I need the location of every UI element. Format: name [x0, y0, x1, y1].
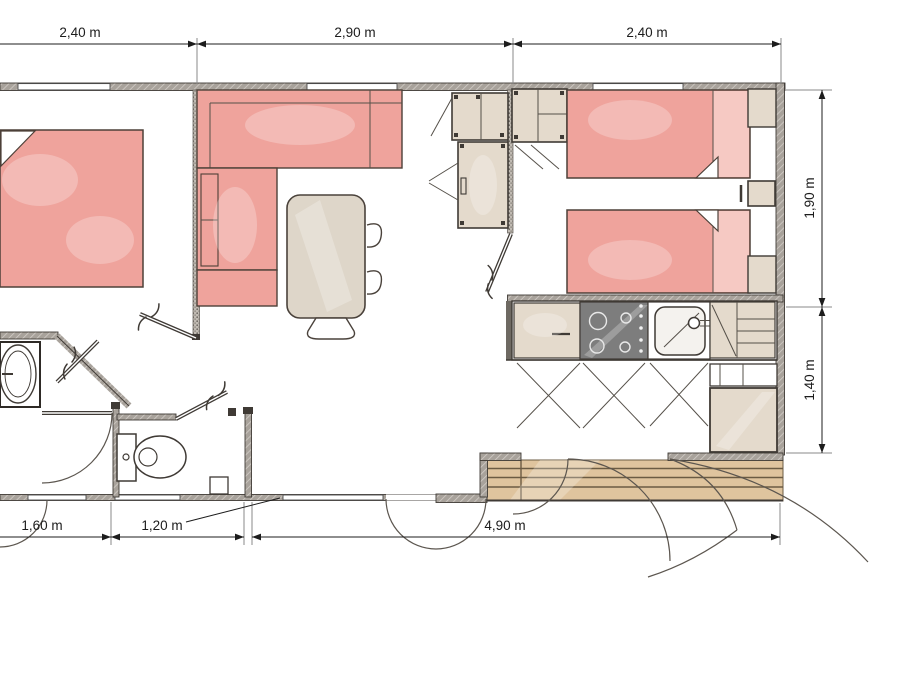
- leader-line: [186, 498, 280, 522]
- dim-label-right-1: 1,90 m: [802, 177, 817, 218]
- window-bottom-3: [283, 495, 383, 500]
- bathroom: [0, 341, 112, 483]
- floor-plan-svg: 2,40 m 2,90 m 2,40 m 1,90 m 1,40 m 1,60 …: [0, 0, 900, 675]
- dim-label-top-1: 2,40 m: [59, 25, 100, 40]
- counter-side-panel: [506, 301, 512, 360]
- single-bed-2: [567, 210, 750, 293]
- dining-table: [287, 195, 381, 339]
- window-top-left: [18, 84, 110, 90]
- wc-top-wall: [117, 414, 176, 420]
- bedroom-right-door: [477, 234, 511, 298]
- wc-right-cap: [243, 407, 253, 414]
- window-top-center: [307, 84, 397, 90]
- entry-hinge-wall: [436, 494, 487, 503]
- wardrobe-bedroom-right: [512, 89, 567, 169]
- dim-label-bottom-3: 4,90 m: [484, 518, 525, 533]
- window-bottom-1: [28, 495, 86, 500]
- kitchen: [506, 301, 777, 452]
- bedroom-right: [477, 89, 776, 298]
- deck-wall-left: [480, 453, 521, 461]
- faucet-icon: [689, 318, 700, 329]
- deck: [484, 460, 783, 501]
- floor-plan-page: 2,40 m 2,90 m 2,40 m 1,90 m 1,40 m 1,60 …: [0, 0, 900, 675]
- wc-left-cap: [111, 402, 120, 409]
- bench: [710, 364, 777, 386]
- deck-wall-right: [668, 453, 783, 461]
- toilet-tank: [117, 434, 136, 481]
- living-room: [197, 90, 508, 339]
- wc-room: [117, 382, 232, 494]
- double-bed: [0, 130, 143, 287]
- shower-door: [54, 341, 98, 382]
- window-bottom-2: [115, 495, 180, 500]
- wardrobe-living-top: [431, 93, 508, 140]
- wc-right-wall: [245, 413, 252, 497]
- washbasin: [0, 342, 40, 407]
- kitchen-shelf-right: [710, 302, 775, 358]
- cabinet-door-swings: [517, 363, 708, 428]
- dim-label-top-2: 2,90 m: [334, 25, 375, 40]
- bedroom-left-door: [132, 304, 196, 338]
- chair-right-2: [367, 271, 381, 294]
- bathroom-door: [42, 413, 112, 483]
- entry-door-opening: [386, 495, 436, 501]
- wc-door-cap: [228, 408, 236, 416]
- window-top-right: [593, 84, 683, 90]
- single-bed-1: [567, 90, 750, 178]
- dim-label-bottom-1: 1,60 m: [21, 518, 62, 533]
- bathroom-top-wall: [0, 332, 58, 339]
- bed-sheen: [2, 154, 78, 206]
- chair-bottom: [307, 318, 354, 339]
- toilet: [117, 434, 186, 481]
- entry-door-arc: [386, 499, 486, 549]
- toilet-bowl: [134, 436, 186, 478]
- chair-right-1: [367, 224, 381, 247]
- headboard-shelf-bottom: [748, 256, 776, 293]
- dim-label-top-3: 2,40 m: [626, 25, 667, 40]
- nightstand: [741, 181, 775, 206]
- wc-bin: [210, 477, 228, 494]
- bed-sheen: [66, 216, 134, 264]
- bedroom-left: [0, 130, 196, 338]
- dim-label-bottom-2: 1,20 m: [141, 518, 182, 533]
- wardrobe-living-tall: [429, 142, 508, 228]
- fridge: [710, 388, 777, 452]
- kitchen-cabinet: [514, 303, 580, 358]
- dim-label-right-2: 1,40 m: [802, 359, 817, 400]
- wc-door: [176, 382, 232, 419]
- headboard-shelf-top: [748, 89, 776, 127]
- hob: [580, 302, 648, 359]
